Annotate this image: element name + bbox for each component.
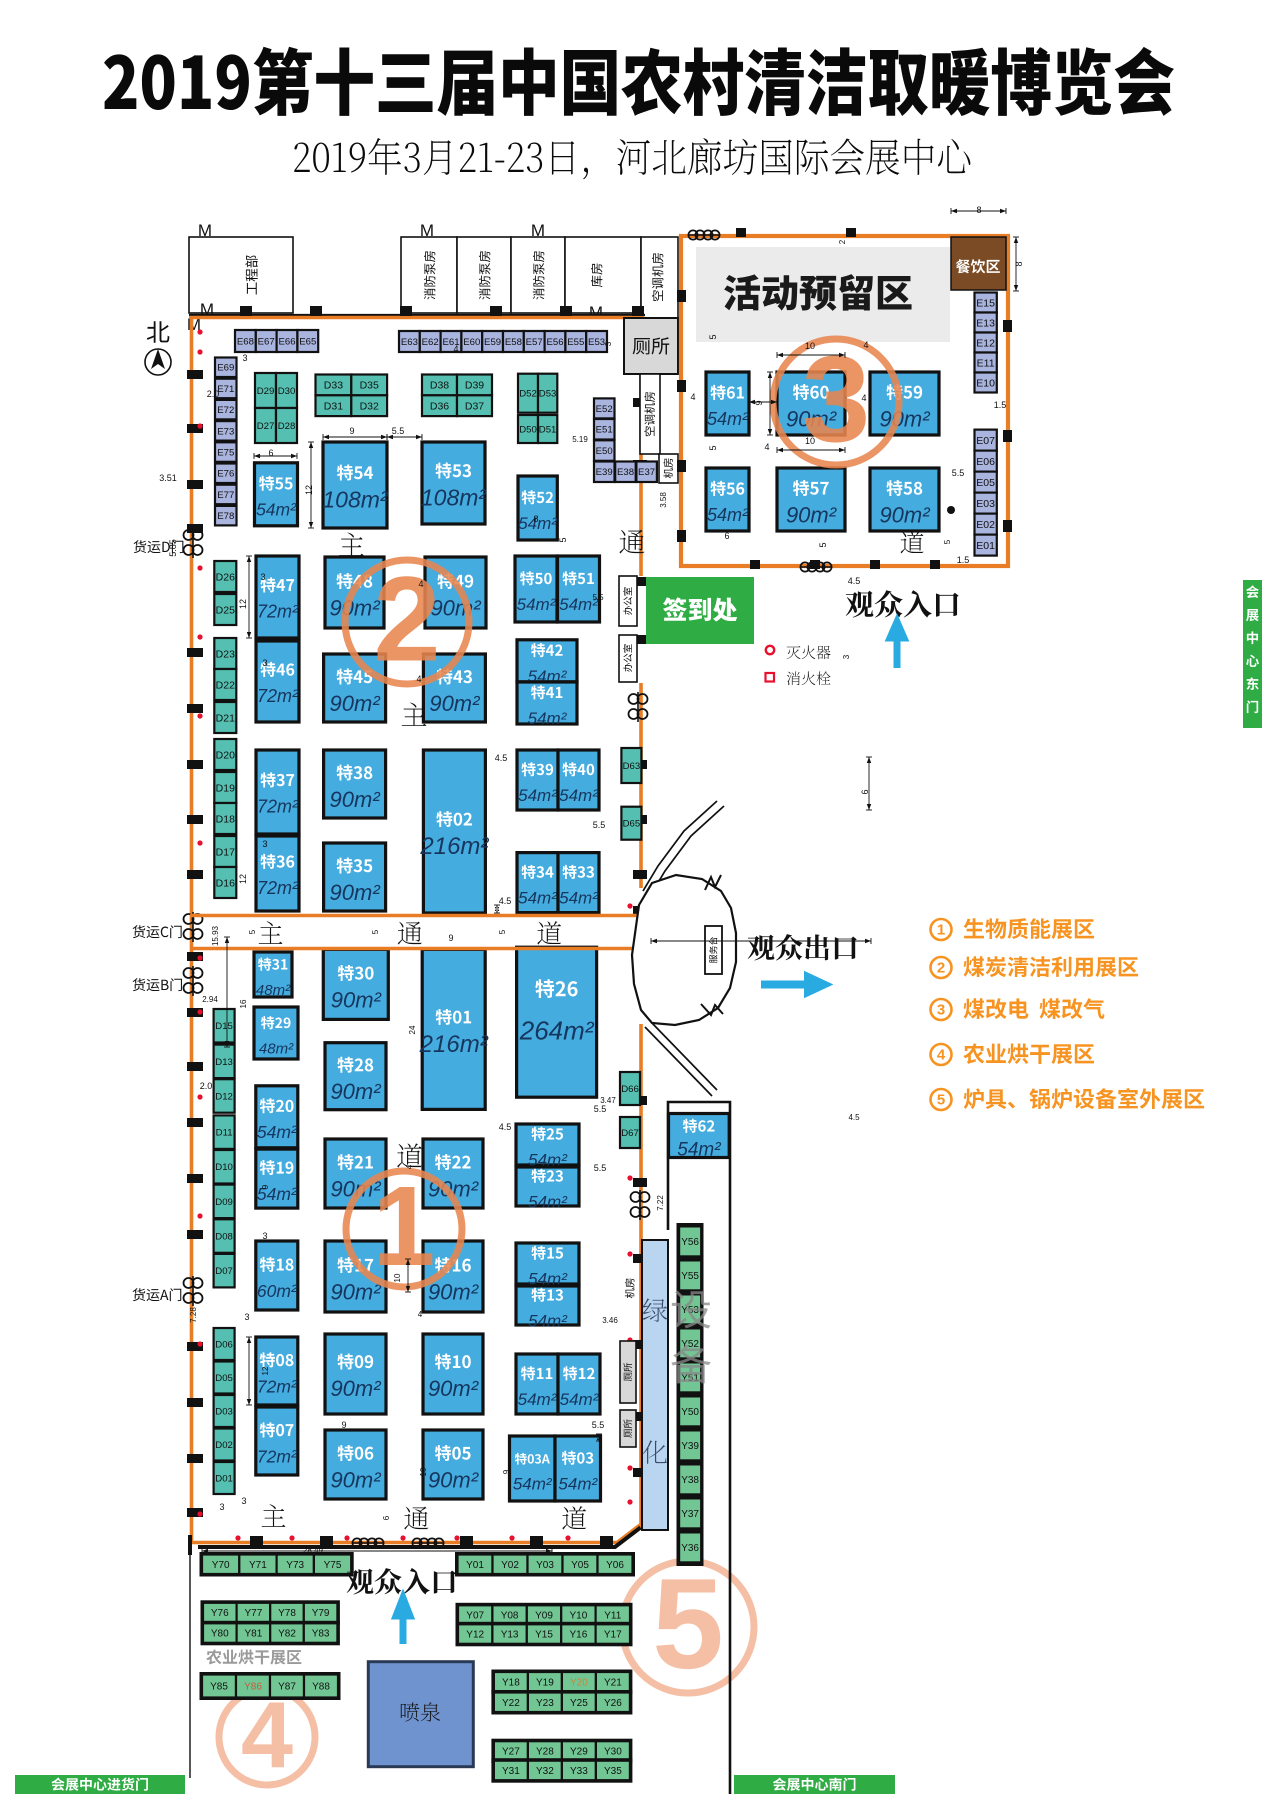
svg-text:2: 2: [373, 551, 440, 686]
svg-text:54m²: 54m²: [707, 409, 749, 429]
svg-text:90m²: 90m²: [879, 406, 930, 431]
svg-text:3: 3: [802, 331, 870, 468]
svg-text:Y32: Y32: [536, 1766, 554, 1777]
svg-text:E77: E77: [217, 490, 234, 501]
svg-text:5: 5: [371, 929, 380, 934]
svg-text:D19: D19: [216, 782, 235, 794]
svg-text:72m²: 72m²: [257, 797, 299, 817]
svg-text:D01: D01: [215, 1474, 233, 1485]
svg-text:Y19: Y19: [536, 1677, 554, 1688]
svg-text:90m²: 90m²: [428, 1376, 479, 1401]
svg-text:54m²: 54m²: [257, 1122, 298, 1142]
svg-text:Y86: Y86: [244, 1682, 262, 1693]
svg-text:E13: E13: [976, 317, 995, 329]
svg-text:M: M: [531, 221, 545, 240]
svg-text:6: 6: [860, 789, 870, 794]
svg-text:D39: D39: [465, 380, 484, 392]
svg-text:90m²: 90m²: [879, 502, 930, 527]
svg-text:D51: D51: [539, 425, 557, 436]
svg-text:4: 4: [861, 393, 866, 403]
svg-text:E05: E05: [976, 477, 995, 489]
svg-text:D12: D12: [215, 1091, 233, 1102]
svg-text:Y73: Y73: [286, 1560, 304, 1571]
svg-text:Y30: Y30: [604, 1747, 622, 1758]
svg-text:D38: D38: [430, 380, 449, 392]
svg-text:D53: D53: [539, 389, 557, 400]
svg-text:E72: E72: [217, 405, 234, 416]
svg-text:Y38: Y38: [681, 1475, 699, 1486]
svg-text:72m²: 72m²: [257, 1376, 298, 1396]
svg-text:Y18: Y18: [502, 1677, 520, 1688]
svg-text:3.51: 3.51: [159, 473, 177, 483]
svg-text:9: 9: [754, 400, 764, 405]
svg-text:48m²: 48m²: [259, 1040, 294, 1057]
svg-text:Y77: Y77: [245, 1608, 263, 1619]
svg-text:90m²: 90m²: [428, 1279, 479, 1304]
svg-text:10: 10: [419, 1467, 428, 1476]
svg-text:10: 10: [805, 341, 815, 351]
svg-text:5.85: 5.85: [168, 539, 178, 557]
svg-text:12: 12: [238, 599, 248, 609]
svg-text:90m²: 90m²: [330, 1079, 381, 1104]
svg-text:Y27: Y27: [502, 1747, 520, 1758]
svg-text:54m²: 54m²: [528, 709, 568, 728]
svg-text:Y03: Y03: [536, 1560, 554, 1571]
svg-text:9: 9: [261, 1184, 270, 1189]
svg-text:D29: D29: [257, 386, 275, 397]
svg-text:Y16: Y16: [570, 1630, 588, 1641]
svg-text:D31: D31: [324, 401, 343, 413]
svg-text:90m²: 90m²: [330, 880, 381, 905]
svg-text:3.47: 3.47: [600, 1096, 616, 1105]
svg-text:9: 9: [448, 933, 453, 943]
svg-text:72m²: 72m²: [257, 602, 299, 622]
svg-text:264m²: 264m²: [519, 1016, 595, 1046]
svg-text:4: 4: [690, 392, 695, 402]
svg-text:12: 12: [261, 1366, 270, 1375]
svg-text:Y88: Y88: [312, 1682, 330, 1693]
svg-text:2.0: 2.0: [200, 1081, 213, 1091]
svg-text:D06: D06: [215, 1340, 233, 1351]
svg-text:Y70: Y70: [212, 1560, 230, 1571]
svg-text:E78: E78: [217, 511, 234, 522]
svg-text:E58: E58: [505, 337, 522, 348]
svg-text:54m²: 54m²: [558, 1475, 598, 1494]
svg-text:D32: D32: [360, 401, 379, 413]
svg-text:D27: D27: [257, 421, 275, 432]
svg-text:E60: E60: [463, 337, 480, 348]
svg-text:D10: D10: [215, 1162, 233, 1173]
svg-text:D66: D66: [621, 1084, 639, 1095]
svg-text:4.5: 4.5: [499, 1122, 512, 1132]
svg-text:D02: D02: [215, 1440, 233, 1451]
svg-text:4.5: 4.5: [848, 1113, 860, 1122]
svg-text:3.58: 3.58: [659, 492, 668, 508]
svg-text:4: 4: [764, 442, 769, 452]
svg-text:M: M: [420, 221, 434, 240]
svg-text:5: 5: [652, 1552, 724, 1696]
svg-text:1.5: 1.5: [957, 555, 970, 565]
svg-text:E76: E76: [217, 469, 234, 480]
svg-text:E59: E59: [484, 337, 501, 348]
svg-text:2: 2: [937, 960, 945, 977]
svg-text:54m²: 54m²: [528, 1193, 568, 1212]
svg-text:E11: E11: [977, 357, 995, 369]
svg-text:90m²: 90m²: [330, 1376, 381, 1401]
svg-text:Y17: Y17: [604, 1630, 622, 1641]
svg-text:5: 5: [818, 542, 828, 547]
svg-text:Y12: Y12: [466, 1630, 484, 1641]
svg-text:D03: D03: [215, 1407, 233, 1418]
svg-text:9: 9: [502, 1469, 511, 1474]
svg-text:E37: E37: [638, 467, 655, 478]
svg-text:3: 3: [219, 1502, 224, 1512]
svg-text:3: 3: [242, 353, 247, 363]
svg-text:5.5: 5.5: [594, 1104, 607, 1114]
svg-text:Y76: Y76: [211, 1608, 229, 1619]
svg-text:D26: D26: [216, 571, 235, 583]
svg-text:5: 5: [558, 537, 568, 542]
svg-text:Y23: Y23: [536, 1698, 554, 1709]
svg-text:5.5: 5.5: [592, 593, 604, 602]
svg-text:D22: D22: [216, 679, 235, 691]
svg-text:E62: E62: [422, 337, 439, 348]
svg-text:D25: D25: [216, 604, 235, 616]
svg-text:5: 5: [943, 539, 952, 544]
svg-text:E03: E03: [976, 498, 995, 510]
svg-text:D65: D65: [623, 819, 641, 830]
svg-text:D50: D50: [519, 425, 537, 436]
svg-text:6: 6: [268, 448, 273, 458]
svg-text:90m²: 90m²: [330, 787, 381, 812]
svg-text:Y31: Y31: [502, 1766, 520, 1777]
svg-text:E63: E63: [401, 337, 418, 348]
svg-text:D13: D13: [215, 1057, 233, 1068]
svg-text:E51: E51: [596, 425, 613, 436]
svg-text:2: 2: [838, 239, 847, 244]
svg-text:E50: E50: [596, 446, 613, 457]
svg-text:4: 4: [405, 1164, 414, 1169]
svg-text:D16: D16: [216, 877, 235, 889]
svg-text:E56: E56: [546, 337, 563, 348]
svg-text:Y15: Y15: [535, 1630, 553, 1641]
svg-text:Y33: Y33: [570, 1766, 588, 1777]
svg-text:6: 6: [724, 531, 729, 541]
svg-text:D20: D20: [216, 749, 235, 761]
svg-text:3: 3: [842, 654, 851, 659]
svg-text:Y05: Y05: [571, 1560, 589, 1571]
svg-text:D37: D37: [465, 401, 484, 413]
svg-text:Y11: Y11: [604, 1611, 621, 1622]
svg-text:D17: D17: [216, 846, 235, 858]
svg-text:D21: D21: [216, 712, 235, 724]
svg-text:15.93: 15.93: [211, 925, 220, 946]
svg-text:216m²: 216m²: [419, 1031, 489, 1058]
svg-text:4: 4: [863, 340, 868, 350]
svg-text:E65: E65: [299, 337, 316, 348]
svg-text:8: 8: [976, 205, 981, 215]
svg-text:Y09: Y09: [535, 1611, 553, 1622]
svg-text:10: 10: [805, 436, 815, 446]
svg-text:Y36: Y36: [681, 1543, 699, 1554]
svg-text:Y26: Y26: [604, 1698, 622, 1709]
svg-text:4.5: 4.5: [499, 896, 512, 906]
svg-text:28.49: 28.49: [303, 1546, 324, 1555]
svg-text:3: 3: [262, 658, 267, 668]
svg-text:E67: E67: [258, 337, 275, 348]
svg-text:3: 3: [937, 1002, 945, 1019]
svg-text:Y87: Y87: [278, 1682, 296, 1693]
svg-text:4: 4: [418, 1310, 423, 1319]
svg-text:D63: D63: [623, 761, 641, 772]
svg-text:Y29: Y29: [570, 1747, 588, 1758]
svg-text:72m²: 72m²: [257, 686, 299, 706]
svg-text:D23: D23: [216, 648, 235, 660]
svg-text:D18: D18: [216, 813, 235, 825]
svg-text:1: 1: [937, 922, 945, 939]
svg-text:Y07: Y07: [466, 1611, 484, 1622]
svg-text:9: 9: [349, 426, 354, 436]
svg-text:7.28: 7.28: [189, 1307, 198, 1323]
svg-text:2.0: 2.0: [207, 389, 220, 399]
svg-text:Y35: Y35: [604, 1766, 622, 1777]
svg-text:4.5: 4.5: [495, 753, 508, 763]
svg-text:60m²: 60m²: [257, 1281, 298, 1301]
svg-text:Y22: Y22: [502, 1698, 520, 1709]
svg-text:5: 5: [498, 929, 507, 934]
svg-text:D67: D67: [621, 1128, 639, 1139]
svg-text:5.19: 5.19: [572, 435, 588, 444]
svg-text:5: 5: [708, 334, 718, 339]
svg-text:24: 24: [408, 1025, 417, 1034]
svg-text:9: 9: [341, 1420, 346, 1430]
svg-text:4: 4: [418, 579, 423, 589]
svg-text:Y02: Y02: [501, 1560, 519, 1571]
svg-text:Y06: Y06: [606, 1560, 624, 1571]
svg-text:5: 5: [248, 929, 257, 934]
svg-text:E69: E69: [217, 363, 234, 374]
svg-text:Y78: Y78: [278, 1608, 296, 1619]
svg-text:90m²: 90m²: [429, 691, 480, 716]
svg-text:90m²: 90m²: [428, 1467, 479, 1492]
svg-text:8: 8: [533, 514, 538, 524]
svg-text:D28: D28: [278, 421, 296, 432]
svg-text:6: 6: [382, 1515, 391, 1520]
svg-text:D35: D35: [360, 380, 379, 392]
svg-text:54m²: 54m²: [559, 786, 599, 805]
svg-text:12: 12: [304, 485, 314, 495]
svg-text:4: 4: [937, 1047, 946, 1064]
svg-text:5: 5: [937, 1092, 945, 1109]
svg-text:D08: D08: [215, 1232, 233, 1243]
svg-text:3: 3: [262, 1231, 267, 1241]
svg-text:48m²: 48m²: [256, 982, 291, 999]
svg-text:3: 3: [262, 839, 267, 849]
svg-text:Y83: Y83: [312, 1629, 330, 1640]
svg-text:D52: D52: [519, 389, 537, 400]
svg-text:108m²: 108m²: [421, 484, 488, 510]
svg-text:54m²: 54m²: [518, 1390, 558, 1409]
svg-text:Y80: Y80: [211, 1629, 229, 1640]
svg-text:54m²: 54m²: [677, 1139, 721, 1160]
svg-text:D36: D36: [430, 401, 449, 413]
svg-text:5.5: 5.5: [952, 468, 965, 478]
svg-text:72m²: 72m²: [257, 878, 299, 898]
svg-text:Y37: Y37: [681, 1509, 699, 1520]
svg-text:Y79: Y79: [312, 1608, 330, 1619]
svg-text:E02: E02: [976, 519, 995, 531]
svg-text:54m²: 54m²: [518, 786, 558, 805]
svg-text:E12: E12: [976, 337, 995, 349]
svg-text:E06: E06: [976, 456, 995, 468]
svg-text:Y50: Y50: [681, 1407, 699, 1418]
svg-text:Y13: Y13: [501, 1630, 519, 1641]
svg-text:5: 5: [708, 445, 718, 450]
svg-text:3.46: 3.46: [602, 1316, 618, 1325]
svg-text:72m²: 72m²: [257, 1446, 298, 1466]
svg-text:E15: E15: [976, 297, 995, 309]
svg-text:90m²: 90m²: [330, 691, 381, 716]
svg-text:E71: E71: [217, 384, 234, 395]
svg-text:M: M: [198, 221, 212, 240]
svg-text:5.5: 5.5: [594, 1163, 607, 1173]
svg-text:90m²: 90m²: [786, 502, 837, 527]
svg-text:E10: E10: [976, 377, 995, 389]
svg-text:E68: E68: [237, 337, 254, 348]
svg-text:E66: E66: [278, 337, 295, 348]
svg-text:5.5: 5.5: [392, 426, 405, 436]
svg-text:Y28: Y28: [536, 1747, 554, 1758]
svg-text:Y21: Y21: [604, 1677, 622, 1688]
svg-text:54m²: 54m²: [528, 1312, 568, 1331]
svg-text:E52: E52: [596, 404, 613, 415]
svg-text:3: 3: [604, 341, 613, 346]
svg-text:54m²: 54m²: [559, 889, 599, 908]
svg-text:E73: E73: [217, 426, 234, 437]
svg-text:3: 3: [260, 572, 265, 582]
svg-text:12: 12: [238, 874, 248, 884]
svg-text:Y71: Y71: [249, 1560, 267, 1571]
svg-text:Y82: Y82: [278, 1629, 296, 1640]
svg-text:5.5: 5.5: [592, 1420, 605, 1430]
svg-text:54m²: 54m²: [256, 500, 297, 520]
svg-text:D33: D33: [324, 380, 343, 392]
svg-text:54m²: 54m²: [513, 1475, 553, 1494]
svg-text:E55: E55: [567, 337, 584, 348]
svg-text:3: 3: [241, 1496, 246, 1506]
svg-text:4: 4: [416, 674, 421, 684]
svg-text:E01: E01: [976, 540, 995, 552]
svg-text:Y39: Y39: [681, 1441, 699, 1452]
svg-text:3: 3: [244, 1312, 249, 1322]
svg-text:Y56: Y56: [681, 1237, 699, 1248]
svg-text:10: 10: [393, 1273, 402, 1282]
svg-text:E07: E07: [976, 435, 995, 447]
svg-text:E75: E75: [217, 448, 234, 459]
svg-text:2.94: 2.94: [202, 995, 218, 1004]
svg-text:E53: E53: [588, 337, 605, 348]
svg-text:Y55: Y55: [681, 1271, 699, 1282]
svg-text:1.5: 1.5: [994, 400, 1007, 410]
svg-text:54m²: 54m²: [517, 595, 557, 614]
svg-text:7.22: 7.22: [656, 1195, 665, 1211]
svg-text:E38: E38: [617, 467, 634, 478]
svg-text:Y25: Y25: [570, 1698, 588, 1709]
svg-text:54m²: 54m²: [560, 1390, 600, 1409]
svg-text:8: 8: [1014, 261, 1024, 266]
svg-text:216m²: 216m²: [419, 833, 489, 860]
svg-text:Y01: Y01: [466, 1560, 484, 1571]
svg-text:90m²: 90m²: [330, 1467, 381, 1492]
svg-text:Y81: Y81: [245, 1629, 263, 1640]
svg-text:D09: D09: [215, 1197, 233, 1208]
svg-text:5.5: 5.5: [593, 820, 606, 830]
svg-text:Y20: Y20: [570, 1677, 588, 1688]
svg-text:54m²: 54m²: [707, 505, 749, 525]
svg-text:D05: D05: [215, 1373, 233, 1384]
svg-text:Y10: Y10: [570, 1611, 588, 1622]
svg-text:4: 4: [453, 344, 458, 354]
svg-text:D15: D15: [215, 1021, 233, 1032]
svg-text:D07: D07: [215, 1266, 233, 1277]
svg-text:E57: E57: [526, 337, 543, 348]
svg-text:Y85: Y85: [210, 1682, 228, 1693]
svg-text:D30: D30: [278, 386, 296, 397]
svg-text:54m²: 54m²: [518, 889, 558, 908]
svg-text:4.5: 4.5: [848, 576, 861, 586]
svg-text:16: 16: [239, 999, 248, 1008]
svg-text:1: 1: [373, 1163, 436, 1289]
svg-text:90m²: 90m²: [331, 987, 382, 1012]
svg-text:Y75: Y75: [324, 1560, 342, 1571]
svg-text:Y08: Y08: [501, 1611, 519, 1622]
svg-text:D11: D11: [216, 1128, 233, 1139]
svg-text:108m²: 108m²: [322, 486, 389, 512]
svg-text:E39: E39: [596, 467, 613, 478]
